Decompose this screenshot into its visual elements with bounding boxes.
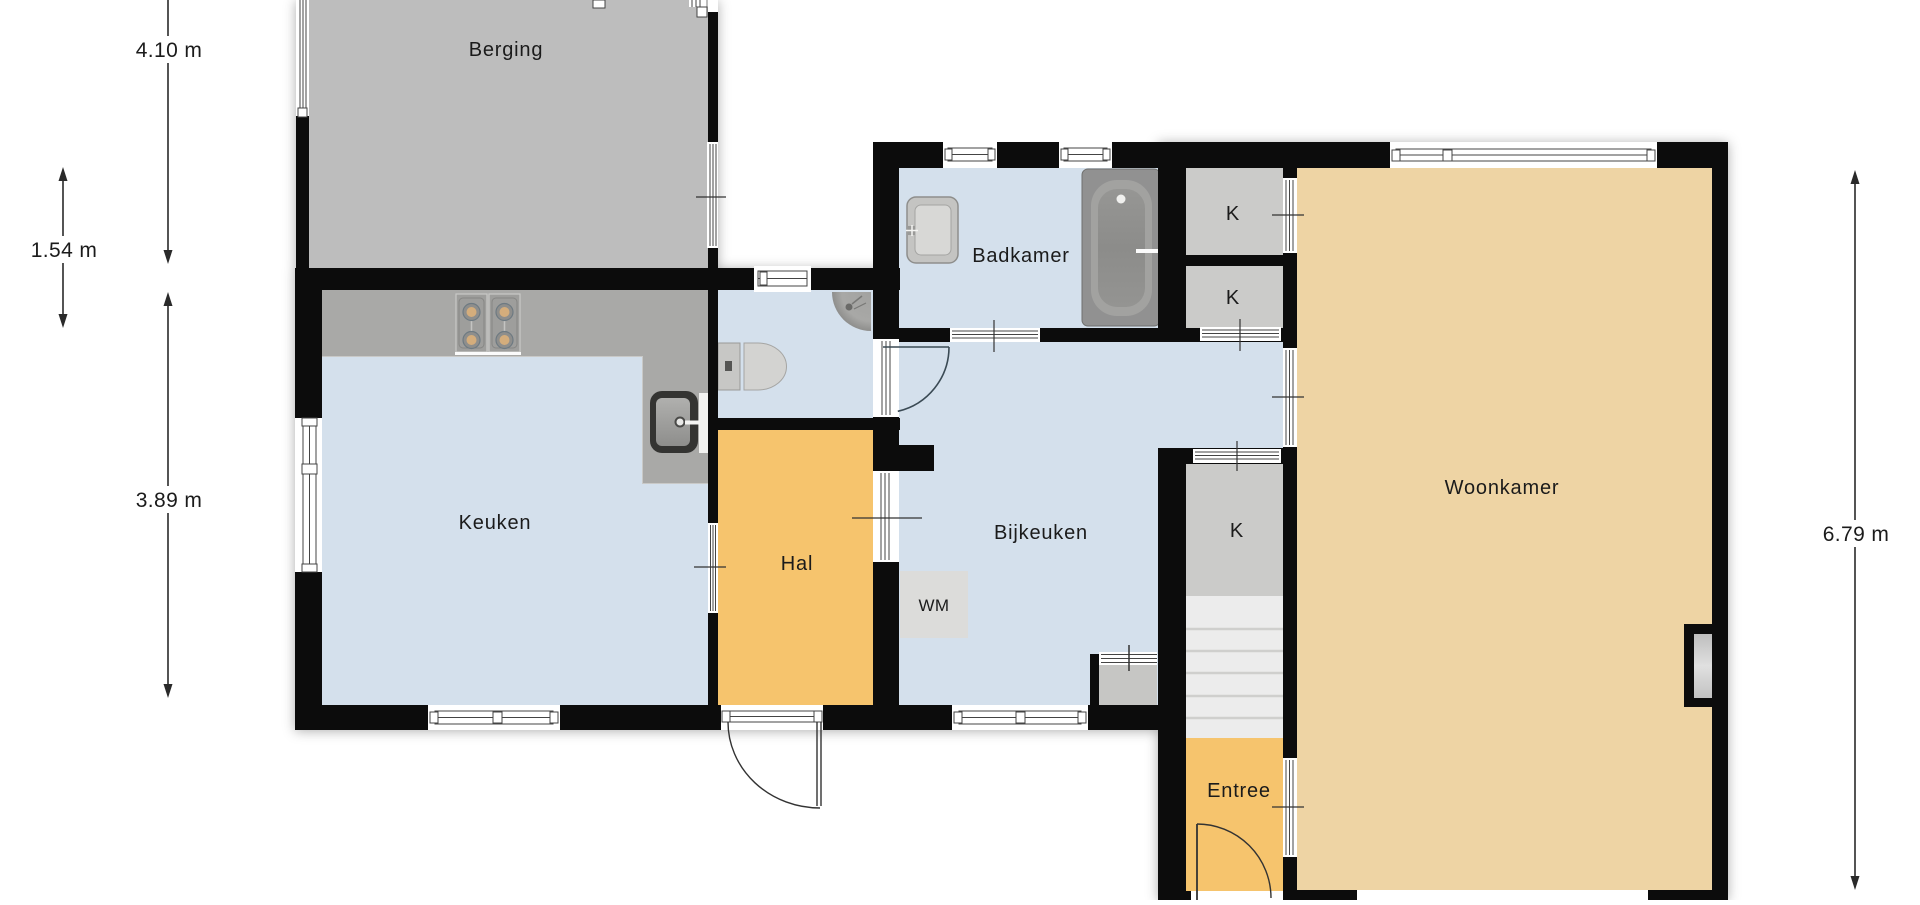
svg-text:K: K [1226, 287, 1240, 309]
svg-text:3.89 m: 3.89 m [136, 489, 203, 512]
svg-text:K: K [1230, 520, 1244, 542]
svg-text:Hal: Hal [781, 553, 813, 575]
svg-text:Entree: Entree [1207, 780, 1271, 802]
svg-text:6.79 m: 6.79 m [1823, 523, 1890, 546]
svg-text:WM: WM [918, 596, 949, 615]
svg-text:K: K [1226, 203, 1240, 225]
svg-text:Keuken: Keuken [459, 512, 532, 534]
svg-text:4.10 m: 4.10 m [136, 39, 203, 62]
svg-text:1.54 m: 1.54 m [31, 239, 98, 262]
svg-text:Woonkamer: Woonkamer [1445, 477, 1560, 499]
svg-text:Berging: Berging [469, 39, 544, 61]
svg-text:Bijkeuken: Bijkeuken [994, 522, 1088, 544]
svg-text:Badkamer: Badkamer [972, 245, 1070, 267]
